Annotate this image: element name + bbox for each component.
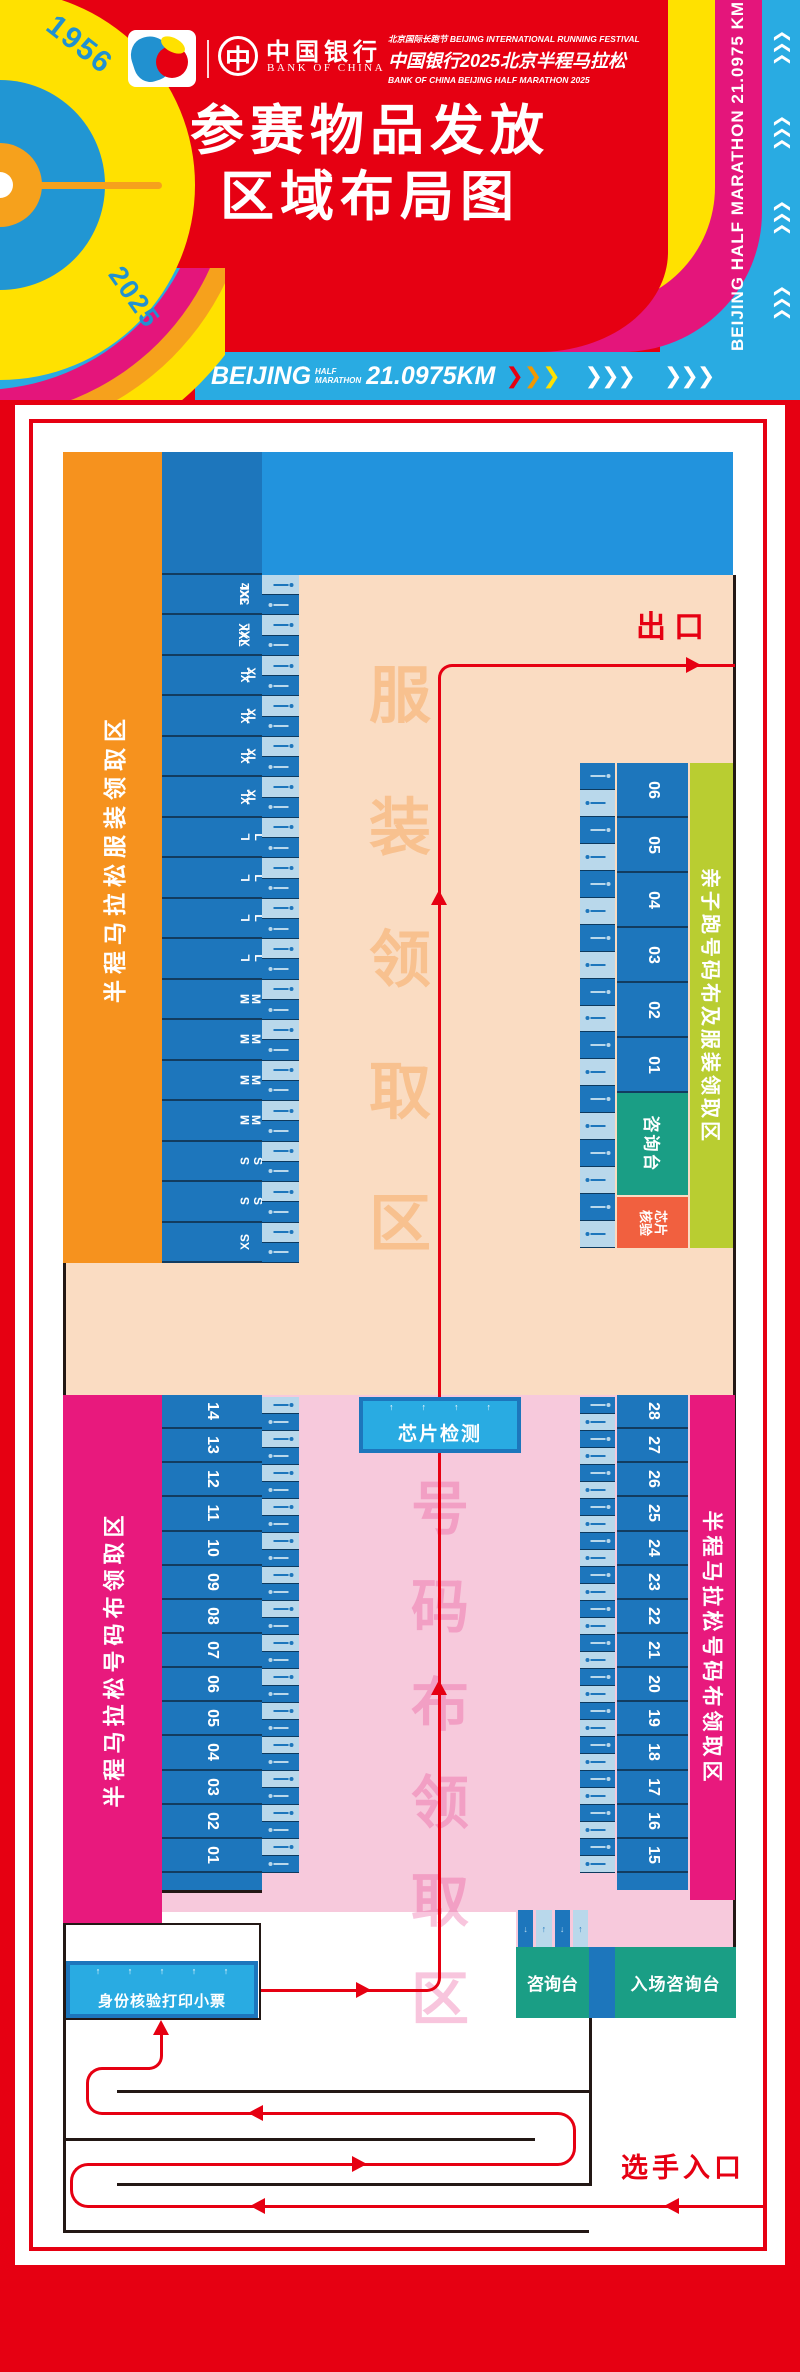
table [580, 898, 615, 925]
clothing-stall-row: M M [162, 980, 262, 1020]
bib-stall-row: 03 [162, 1771, 262, 1805]
table-mark [590, 1523, 605, 1525]
family-tables-column [580, 763, 615, 1248]
table-mark [273, 766, 288, 768]
table [262, 919, 299, 939]
table-mark [590, 1455, 605, 1457]
clothing-stall-head-block [162, 452, 262, 575]
table-mark [590, 1404, 605, 1406]
table-pair [262, 818, 299, 858]
table-mark [590, 991, 605, 993]
bib-zone-left-label: 半程马拉松号码布领取区 [97, 1510, 129, 1807]
table [262, 1243, 299, 1263]
table: ↑ [536, 1910, 551, 1947]
table-mark [273, 1863, 288, 1865]
table-mark [273, 786, 288, 788]
table-mark [590, 802, 605, 804]
route-arrow-right [686, 657, 701, 673]
table [262, 1652, 299, 1669]
table-pair [580, 1465, 615, 1499]
route-arrow-up [431, 1680, 447, 1695]
stall-number: 11 [203, 1505, 221, 1522]
chip-detect-arrows: ↑↑↑↑ [363, 1401, 517, 1412]
table-mark [590, 1710, 605, 1712]
table-mark [590, 1574, 605, 1576]
table [262, 717, 299, 737]
table-mark [590, 1438, 605, 1440]
table-mark [273, 685, 288, 687]
table [580, 1567, 615, 1584]
table [262, 1431, 299, 1448]
family-stall-column: 06 05 04 03 02 01 [617, 763, 688, 1093]
table [262, 1101, 299, 1121]
table [262, 1788, 299, 1805]
table-mark [273, 1231, 288, 1233]
size-sign: XL [244, 668, 258, 683]
table [262, 879, 299, 899]
stall-number: 17 [644, 1778, 662, 1796]
table-mark [273, 948, 288, 950]
table [262, 595, 299, 615]
table [580, 1669, 615, 1686]
size-sign: M [249, 1075, 263, 1085]
clothing-stall-rows: 3XL 4XL XXL XXL XL XL XL XL XL XL XL XL … [162, 575, 262, 1263]
stall-number: 20 [644, 1675, 662, 1693]
clothing-stall-row: XS [162, 1223, 262, 1263]
festival-name-line: 北京国际长跑节 BEIJING INTERNATIONAL RUNNING FE… [388, 33, 658, 45]
table [262, 737, 299, 757]
table [262, 1202, 299, 1222]
table-mark [273, 1744, 288, 1746]
table-mark [273, 1710, 288, 1712]
table-mark [273, 745, 288, 747]
bib-stall-row: 07 [162, 1634, 262, 1668]
clothing-area-floor-lower [63, 1263, 735, 1395]
table-mark [273, 1472, 288, 1474]
bib-stall-row: 22 [617, 1600, 688, 1634]
table-mark [590, 1506, 605, 1508]
bib-stall-row: 23 [617, 1566, 688, 1600]
table [580, 1686, 615, 1703]
family-stall-row: 05 [617, 818, 688, 873]
table [262, 1516, 299, 1533]
bib-stall-row: 27 [617, 1429, 688, 1463]
table-mark [590, 1795, 605, 1797]
table-mark [273, 928, 288, 930]
chevron-right-icon: ❯❯❯ [585, 363, 634, 389]
queue-wall-left [63, 1923, 66, 2233]
table-mark [273, 907, 288, 909]
table-mark [590, 1846, 605, 1848]
bib-right-empty-block [617, 1873, 688, 1890]
route-idcheck-line [261, 1989, 426, 1992]
chevron-right-icon: ❯ [542, 363, 558, 389]
stall-number: 15 [644, 1846, 662, 1864]
table-mark [273, 1676, 288, 1678]
banner-city: BEIJING [211, 362, 311, 391]
table [580, 925, 615, 952]
id-check-box: ↑↑↑↑↑ 身份核验打印小票 [66, 1961, 258, 2018]
stall-number: 03 [203, 1778, 221, 1796]
table-pair [262, 1839, 299, 1873]
table-mark [273, 1489, 288, 1491]
entrance-info-desk: 入场咨询台 [615, 1947, 736, 2018]
table-pair [580, 1086, 615, 1140]
table-pair [580, 817, 615, 871]
bib-stall-row: 26 [617, 1463, 688, 1497]
family-info-desk: 咨询台 [617, 1093, 688, 1195]
size-sign: 4XL [237, 583, 251, 605]
table-mark [590, 1421, 605, 1423]
chip-detect-label: 芯片检测 [363, 1419, 517, 1449]
up-arrow-icon: ↑ [389, 1402, 394, 1412]
table-pair [262, 1182, 299, 1222]
size-sign: M [249, 994, 263, 1004]
stall-number: 06 [644, 781, 662, 799]
clothing-stall-row: S S [162, 1182, 262, 1222]
table-mark [273, 1506, 288, 1508]
table-mark [273, 705, 288, 707]
table-mark [273, 1251, 288, 1253]
size-sign: XS [238, 1234, 252, 1250]
table [262, 1121, 299, 1141]
table-pair [262, 656, 299, 696]
table-mark [273, 1557, 288, 1559]
route-arrow-right [352, 2156, 367, 2172]
clothing-stall-row: XL XL [162, 737, 262, 777]
table-mark [590, 1098, 605, 1100]
banner-half-marathon: HALFMARATHON [315, 367, 361, 385]
table [262, 1754, 299, 1771]
table [580, 1482, 615, 1499]
stall-number: 13 [203, 1436, 221, 1454]
table-pair [262, 575, 299, 615]
table [262, 1584, 299, 1601]
table [262, 1000, 299, 1020]
bib-stall-row: 15 [617, 1839, 688, 1873]
info-desk-tables: ↓↑↓↑ [518, 1910, 588, 1947]
id-check-label: 身份核验打印小票 [70, 1990, 254, 2014]
table-mark [273, 1029, 288, 1031]
table [580, 871, 615, 898]
table-pair [580, 763, 615, 817]
table-pair [262, 1669, 299, 1703]
table-mark [590, 1206, 605, 1208]
table [262, 1856, 299, 1873]
table-mark [273, 988, 288, 990]
table-mark [590, 1044, 605, 1046]
size-sign: M [249, 1034, 263, 1044]
table-mark [590, 1489, 605, 1491]
chip-verify-box: 芯片核验 [617, 1197, 688, 1248]
table [262, 959, 299, 979]
chevron-right-icon: ❯ [524, 363, 540, 389]
table [262, 696, 299, 716]
table [262, 1061, 299, 1081]
size-sign: XL [244, 789, 258, 804]
table-mark [273, 1455, 288, 1457]
table [580, 1431, 615, 1448]
bib-stall-row: 01 [162, 1839, 262, 1873]
table-mark [590, 856, 605, 858]
poster-title-line2: 区域布局图 [140, 152, 600, 231]
table [262, 1771, 299, 1788]
table-mark [273, 624, 288, 626]
table-pair [262, 1061, 299, 1101]
table [580, 1856, 615, 1873]
table-mark [273, 1795, 288, 1797]
stall-number: 28 [644, 1402, 662, 1420]
queue-wall [65, 2230, 589, 2233]
bib-stall-row: 17 [617, 1771, 688, 1805]
table-pair [262, 1533, 299, 1567]
table [262, 1805, 299, 1822]
clothing-stall-row: L L [162, 818, 262, 858]
table-mark [273, 887, 288, 889]
table [580, 1167, 615, 1194]
family-stall-row: 02 [617, 983, 688, 1038]
table [262, 1182, 299, 1202]
table-mark [273, 1069, 288, 1071]
table [262, 575, 299, 595]
bib-right-tables-column [580, 1397, 615, 1873]
table-mark [590, 1676, 605, 1678]
table-pair [262, 1499, 299, 1533]
table-mark [590, 1693, 605, 1695]
table [580, 1140, 615, 1167]
stall-number: 04 [644, 891, 662, 909]
table-pair [580, 925, 615, 979]
table [580, 1601, 615, 1618]
table-pair [262, 1635, 299, 1669]
table-pair [580, 1431, 615, 1465]
table-mark [590, 964, 605, 966]
table-mark [273, 1608, 288, 1610]
table-mark [273, 1761, 288, 1763]
table [580, 1652, 615, 1669]
table-mark [590, 1642, 605, 1644]
table [580, 1754, 615, 1771]
up-arrow-icon: ↑ [454, 1402, 459, 1412]
table-pair [580, 1194, 615, 1248]
table [580, 1499, 615, 1516]
table-pair [262, 1020, 299, 1060]
route-u-turn [556, 2112, 576, 2166]
route-line [102, 2067, 150, 2070]
table [262, 656, 299, 676]
table-mark [273, 644, 288, 646]
table [262, 1839, 299, 1856]
table-mark [590, 775, 605, 777]
stall-number: 04 [203, 1744, 221, 1762]
table-pair [262, 1771, 299, 1805]
table-mark [273, 1812, 288, 1814]
table-mark [590, 1727, 605, 1729]
bib-left-tables-column [262, 1397, 299, 1873]
table-mark [590, 937, 605, 939]
clothing-stall-row: L L [162, 939, 262, 979]
table-mark [273, 867, 288, 869]
clothing-tables-column [262, 575, 299, 1263]
stall-number: 10 [203, 1539, 221, 1557]
table [262, 939, 299, 959]
table-pair [262, 980, 299, 1020]
table [262, 1499, 299, 1516]
stall-number: 08 [203, 1607, 221, 1625]
chevron-right-icon: ❯ [505, 363, 521, 389]
clothing-stall-row: M M [162, 1061, 262, 1101]
size-sign: L [238, 914, 252, 921]
table-mark [273, 968, 288, 970]
table-mark [590, 1152, 605, 1154]
table-mark [590, 1863, 605, 1865]
table [580, 1397, 615, 1414]
clothing-stall-row: S S [162, 1142, 262, 1182]
table-mark [273, 1829, 288, 1831]
table-mark [273, 826, 288, 828]
bib-left-empty-block [162, 1873, 262, 1893]
table-pair [580, 1839, 615, 1873]
queue-wall [117, 2183, 589, 2186]
table-mark [590, 1472, 605, 1474]
chip-detect-box: ↑↑↑↑ 芯片检测 [359, 1397, 521, 1453]
event-title-block: 北京国际长跑节 BEIJING INTERNATIONAL RUNNING FE… [388, 33, 658, 85]
table-mark [273, 1130, 288, 1132]
table-mark [273, 1110, 288, 1112]
clothing-stall-row: M M [162, 1020, 262, 1060]
arrow-icon: ↑ [542, 1924, 547, 1934]
table-mark [273, 725, 288, 727]
route-arrow-right [356, 1982, 371, 1998]
table-mark [590, 1540, 605, 1542]
stall-number: 21 [644, 1641, 662, 1659]
bib-zone-left-bar: 半程马拉松号码布领取区 [63, 1395, 162, 1923]
bib-right-stall-column: 28 27 26 25 24 23 22 21 20 19 18 17 16 1… [617, 1395, 688, 1873]
table [580, 844, 615, 871]
table [262, 1635, 299, 1652]
table [580, 952, 615, 979]
table [580, 1516, 615, 1533]
route-arrow-left [248, 2105, 263, 2121]
table-mark [273, 1540, 288, 1542]
table [262, 980, 299, 1000]
bank-of-china-logo-icon: 中 [218, 36, 258, 76]
table [580, 1550, 615, 1567]
table-mark [273, 1846, 288, 1848]
table [262, 899, 299, 919]
table-pair [262, 1142, 299, 1182]
stall-number: 22 [644, 1607, 662, 1625]
queue-wall-right [589, 2018, 592, 2186]
table-mark [273, 1659, 288, 1661]
bib-zone-right-bar: 半程马拉松号码布领取区 [690, 1395, 735, 1900]
table-pair [580, 1032, 615, 1086]
table [580, 1703, 615, 1720]
table [580, 1584, 615, 1601]
stall-number: 02 [203, 1812, 221, 1830]
table [580, 979, 615, 1006]
chevron-up-icon: ❯❯❯ [771, 286, 791, 320]
clothing-stall-column: 3XL 4XL XXL XXL XL XL XL XL XL XL XL XL … [162, 452, 262, 1263]
table: ↓ [518, 1910, 533, 1947]
clothing-area-watermark: 服装领取区 [369, 645, 431, 1263]
table-mark [273, 1211, 288, 1213]
table-mark [590, 1659, 605, 1661]
table [262, 1703, 299, 1720]
route-arrow-up [153, 2020, 169, 2035]
chip-verify-label: 芯片核验 [638, 1207, 668, 1239]
table [580, 1086, 615, 1113]
table-pair [262, 1703, 299, 1737]
bib-stall-row: 05 [162, 1702, 262, 1736]
bib-stall-row: 16 [617, 1805, 688, 1839]
bib-stall-row: 28 [617, 1395, 688, 1429]
table [580, 1414, 615, 1431]
route-arrow-up [431, 890, 447, 905]
table-mark [273, 1170, 288, 1172]
clothing-stall-row: XL XL [162, 777, 262, 817]
table-pair [580, 1771, 615, 1805]
table-pair [262, 696, 299, 736]
stall-number: 01 [203, 1846, 221, 1864]
table-pair [580, 871, 615, 925]
table-mark [590, 883, 605, 885]
table [262, 1550, 299, 1567]
table-pair [262, 1737, 299, 1771]
table-pair [262, 1431, 299, 1465]
table [262, 1465, 299, 1482]
table-mark [273, 1727, 288, 1729]
table-mark [273, 1191, 288, 1193]
size-sign: S [238, 1197, 252, 1205]
stall-number: 19 [644, 1709, 662, 1727]
bib-stall-row: 19 [617, 1702, 688, 1736]
table-mark [590, 1125, 605, 1127]
bottom-banner: BEIJING HALFMARATHON 21.0975KM ❯ ❯ ❯ ❯❯❯… [195, 352, 800, 400]
table [580, 1221, 615, 1248]
table [262, 1669, 299, 1686]
bib-stall-row: 24 [617, 1532, 688, 1566]
size-sign: XL [244, 708, 258, 723]
route-arrow-left [250, 2198, 265, 2214]
queue-wall [65, 2138, 535, 2141]
size-sign: XL [244, 748, 258, 763]
table-mark [590, 1179, 605, 1181]
stall-number: 14 [203, 1402, 221, 1420]
table [580, 1720, 615, 1737]
table [262, 1533, 299, 1550]
table [262, 798, 299, 818]
table-pair [262, 858, 299, 898]
bib-stall-row: 14 [162, 1395, 262, 1429]
up-arrow-icon: ↑ [487, 1402, 492, 1412]
clothing-zone-bar: 半程马拉松服装领取区 [63, 452, 162, 1263]
route-arrow-left [664, 2198, 679, 2214]
route-line [88, 2163, 558, 2166]
clothing-stall-row: M M [162, 1101, 262, 1141]
table-mark [590, 910, 605, 912]
stall-number: 16 [644, 1812, 662, 1830]
stall-number: 18 [644, 1744, 662, 1762]
up-arrow-icon: ↑ [224, 1966, 229, 1976]
id-check-arrows: ↑↑↑↑↑ [70, 1965, 254, 1976]
bib-stall-row: 10 [162, 1532, 262, 1566]
side-banner-chevrons: ❯❯❯❯❯❯❯❯❯❯❯❯ [762, 6, 800, 346]
table-pair [580, 1567, 615, 1601]
table [262, 777, 299, 797]
table [580, 1805, 615, 1822]
stall-number: 07 [203, 1641, 221, 1659]
